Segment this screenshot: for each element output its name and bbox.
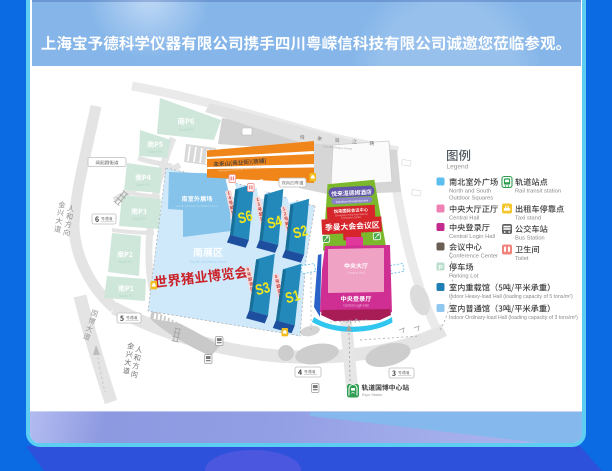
- svg-text:South P2: South P2: [118, 260, 132, 264]
- svg-text:Central Login Hall: Central Login Hall: [343, 304, 369, 308]
- svg-text:South P6: South P6: [179, 128, 193, 132]
- svg-text:Central Hall: Central Hall: [449, 216, 479, 222]
- svg-text:North and South: North and South: [449, 189, 491, 195]
- svg-text:South P1: South P1: [119, 294, 133, 298]
- svg-text:Toilet: Toilet: [515, 256, 529, 262]
- svg-text:Bus Station: Bus Station: [515, 236, 545, 242]
- svg-text:South Exhibition Area: South Exhibition Area: [190, 260, 227, 264]
- svg-text:Conference Center: Conference Center: [449, 254, 498, 260]
- svg-text:Parking Lot: Parking Lot: [449, 274, 479, 280]
- svg-text:Outdoor Squares: Outdoor Squares: [449, 196, 493, 202]
- svg-text:Indoor Ordinary-load Hall (loa: Indoor Ordinary-load Hall (loading capac…: [449, 315, 578, 321]
- svg-text:Rail transit station: Rail transit station: [515, 189, 561, 195]
- svg-text:South Outdoor Exhibition Area: South Outdoor Exhibition Area: [176, 204, 218, 208]
- svg-text:Expo Station: Expo Station: [362, 393, 382, 397]
- svg-text:South P4: South P4: [136, 183, 150, 187]
- svg-text:Taxi stand: Taxi stand: [515, 216, 541, 222]
- svg-text:Indoor Heavy-load Hall (loadin: Indoor Heavy-load Hall (loading capacity…: [449, 294, 573, 300]
- svg-text:South P3: South P3: [132, 217, 146, 221]
- svg-text:Central Login Hall: Central Login Hall: [449, 234, 495, 240]
- svg-text:Legend: Legend: [447, 164, 469, 171]
- svg-text:South P5: South P5: [148, 150, 162, 154]
- svg-text:Central Hall: Central Hall: [347, 271, 364, 275]
- svg-text:P: P: [438, 265, 443, 272]
